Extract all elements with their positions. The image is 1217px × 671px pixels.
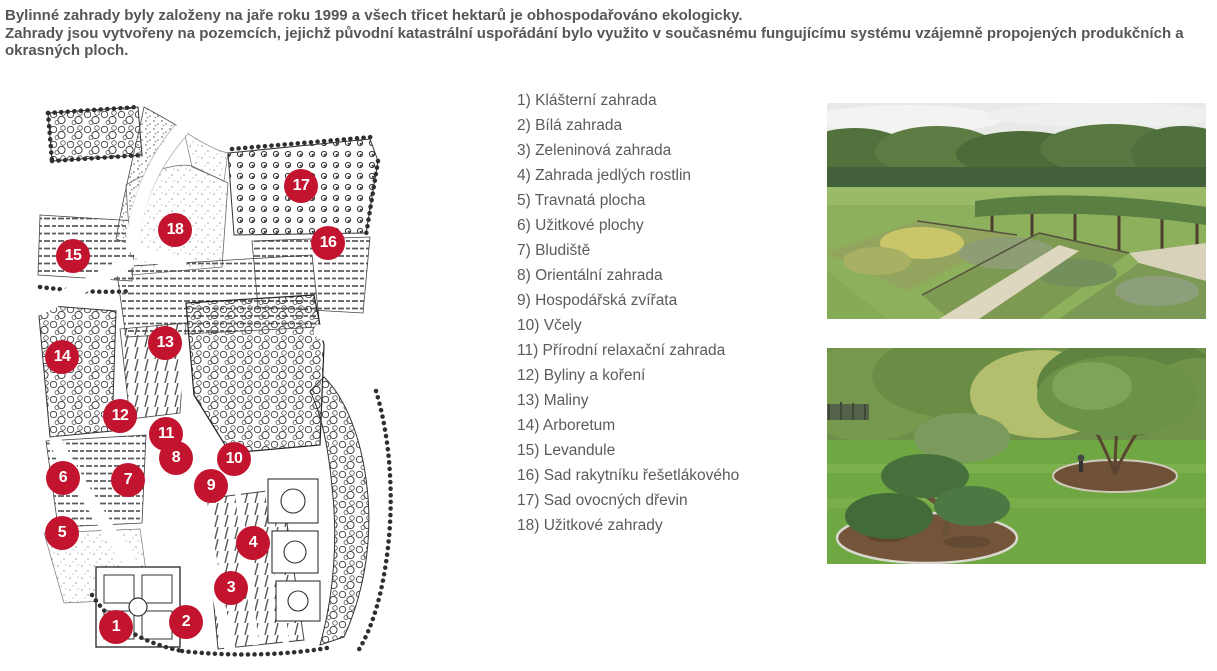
legend-item-12: 12) Byliny a koření xyxy=(517,363,739,388)
map-marker-18: 18 xyxy=(158,213,192,247)
map-marker-4: 4 xyxy=(236,526,270,560)
map-marker-7: 7 xyxy=(111,463,145,497)
map-marker-12: 12 xyxy=(103,399,137,433)
legend-item-15: 15) Levandule xyxy=(517,438,739,463)
legend-item-13: 13) Maliny xyxy=(517,388,739,413)
legend-item-5: 5) Travnatá plocha xyxy=(517,188,739,213)
legend-item-1: 1) Klášterní zahrada xyxy=(517,88,739,113)
map-marker-3: 3 xyxy=(214,571,248,605)
map-marker-14: 14 xyxy=(45,340,79,374)
intro-text: Bylinné zahrady byly založeny na jaře ro… xyxy=(5,7,1197,60)
intro-paragraph-2: Zahrady jsou vytvořeny na pozemcích, jej… xyxy=(5,25,1197,60)
legend-item-4: 4) Zahrada jedlých rostlin xyxy=(517,163,739,188)
legend-item-8: 8) Orientální zahrada xyxy=(517,263,739,288)
legend-item-18: 18) Užitkové zahrady xyxy=(517,513,739,538)
map-marker-17: 17 xyxy=(284,169,318,203)
map-marker-6: 6 xyxy=(46,461,80,495)
legend-item-2: 2) Bílá zahrada xyxy=(517,113,739,138)
legend-item-3: 3) Zeleninová zahrada xyxy=(517,138,739,163)
topiary-garden-photo xyxy=(827,348,1206,564)
map-marker-10: 10 xyxy=(217,442,251,476)
legend-list: 1) Klášterní zahrada 2) Bílá zahrada 3) … xyxy=(517,88,739,538)
legend-item-6: 6) Užitkové plochy xyxy=(517,213,739,238)
map-marker-11: 11 xyxy=(149,417,183,451)
map-marker-13: 13 xyxy=(148,326,182,360)
legend-item-11: 11) Přírodní relaxační zahrada xyxy=(517,338,739,363)
intro-paragraph-1: Bylinné zahrady byly založeny na jaře ro… xyxy=(5,7,1197,25)
map-marker-1: 1 xyxy=(99,610,133,644)
map-area-topleft-shrubs xyxy=(48,107,142,161)
legend-item-9: 9) Hospodářská zvířata xyxy=(517,288,739,313)
herb-garden-illustration xyxy=(827,103,1206,319)
map-area-ornamental-4 xyxy=(268,479,320,621)
map-marker-16: 16 xyxy=(311,226,345,260)
legend-item-17: 17) Sad ovocných dřevin xyxy=(517,488,739,513)
map-marker-15: 15 xyxy=(56,239,90,273)
topiary-garden-illustration xyxy=(827,348,1206,564)
legend-item-16: 16) Sad rakytníku řešetlákového xyxy=(517,463,739,488)
legend-item-7: 7) Bludiště xyxy=(517,238,739,263)
map-marker-2: 2 xyxy=(169,605,203,639)
garden-site-plan: 1 2 3 4 5 6 7 8 9 10 11 12 13 14 15 16 1… xyxy=(32,95,450,660)
maple-tree xyxy=(1037,356,1197,492)
legend-item-14: 14) Arboretum xyxy=(517,413,739,438)
map-marker-9: 9 xyxy=(194,469,228,503)
legend-item-10: 10) Včely xyxy=(517,313,739,338)
map-central-shrubs xyxy=(186,295,324,453)
herb-garden-photo xyxy=(827,103,1206,319)
map-marker-5: 5 xyxy=(45,516,79,550)
